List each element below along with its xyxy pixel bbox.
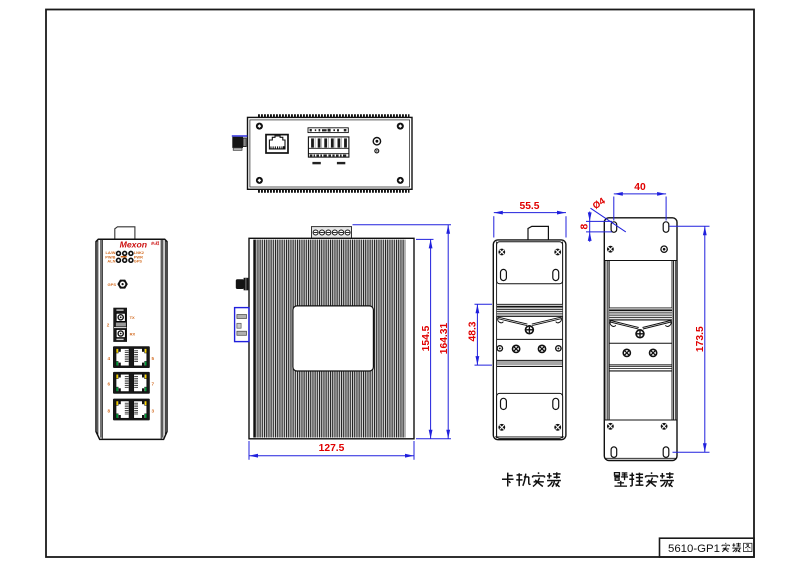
svg-text:154.5: 154.5 bbox=[421, 325, 432, 351]
svg-text:7: 7 bbox=[152, 382, 155, 387]
svg-text:GPS: GPS bbox=[134, 259, 143, 264]
svg-text:127.5: 127.5 bbox=[319, 443, 345, 454]
svg-text:GPS: GPS bbox=[108, 282, 117, 287]
svg-text:5: 5 bbox=[152, 356, 155, 361]
svg-text:164.31: 164.31 bbox=[439, 322, 450, 354]
svg-text:4: 4 bbox=[108, 356, 111, 361]
svg-text:TX: TX bbox=[130, 315, 135, 320]
svg-text:2: 2 bbox=[107, 322, 110, 327]
svg-text:Mexon: Mexon bbox=[120, 240, 148, 250]
svg-text:RX: RX bbox=[130, 331, 136, 336]
svg-text:48.3: 48.3 bbox=[467, 321, 478, 341]
svg-text:ALN: ALN bbox=[107, 259, 115, 264]
svg-text:40: 40 bbox=[634, 182, 646, 193]
svg-text:6: 6 bbox=[108, 382, 111, 387]
svg-text:5610-GP1: 5610-GP1 bbox=[668, 543, 720, 555]
svg-text:8: 8 bbox=[580, 223, 591, 229]
svg-text:55.5: 55.5 bbox=[519, 201, 539, 212]
svg-text:3: 3 bbox=[152, 408, 155, 413]
svg-text:8: 8 bbox=[108, 408, 111, 413]
svg-text:173.5: 173.5 bbox=[695, 326, 706, 352]
